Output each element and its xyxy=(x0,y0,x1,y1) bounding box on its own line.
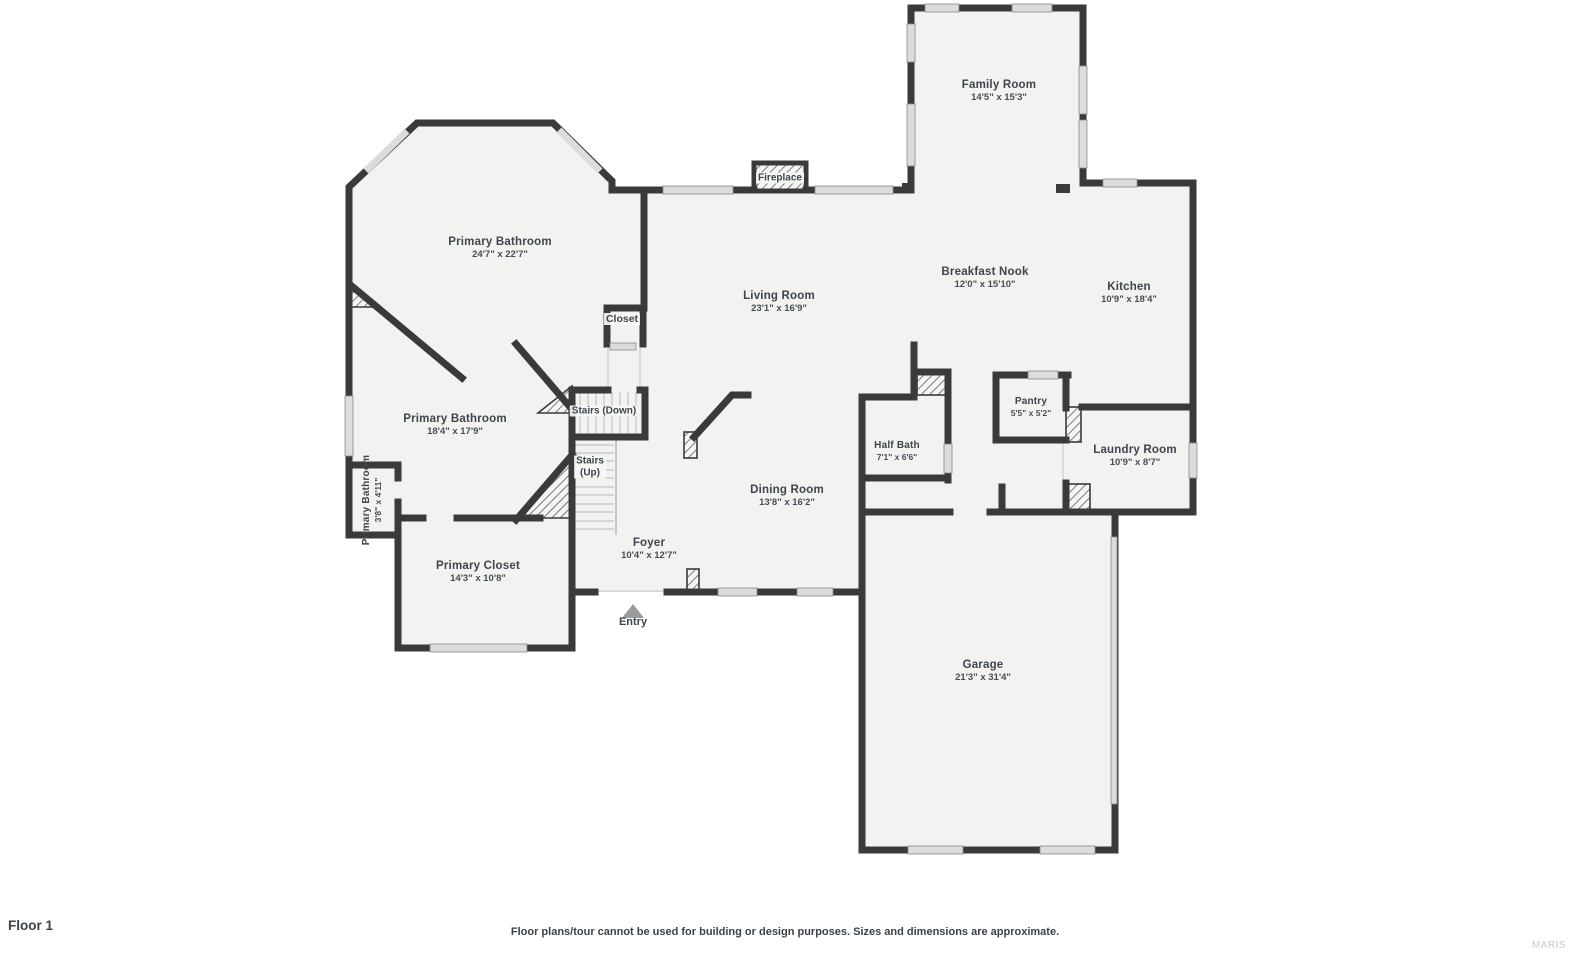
floor-title: Floor 1 xyxy=(8,918,53,933)
floor-plan-page: Family Room 14'5" x 15'3" Primary Bathro… xyxy=(0,0,1570,958)
half-bath-door xyxy=(917,374,946,395)
floor-plan-drawing xyxy=(0,0,1570,958)
fireplace-box xyxy=(754,163,806,191)
laundry-door xyxy=(1068,484,1090,510)
maris-watermark: MARIS xyxy=(1532,940,1566,951)
entry-door-jamb xyxy=(687,569,699,591)
disclaimer-text: Floor plans/tour cannot be used for buil… xyxy=(511,926,1059,938)
entry-label: Entry xyxy=(619,616,647,628)
